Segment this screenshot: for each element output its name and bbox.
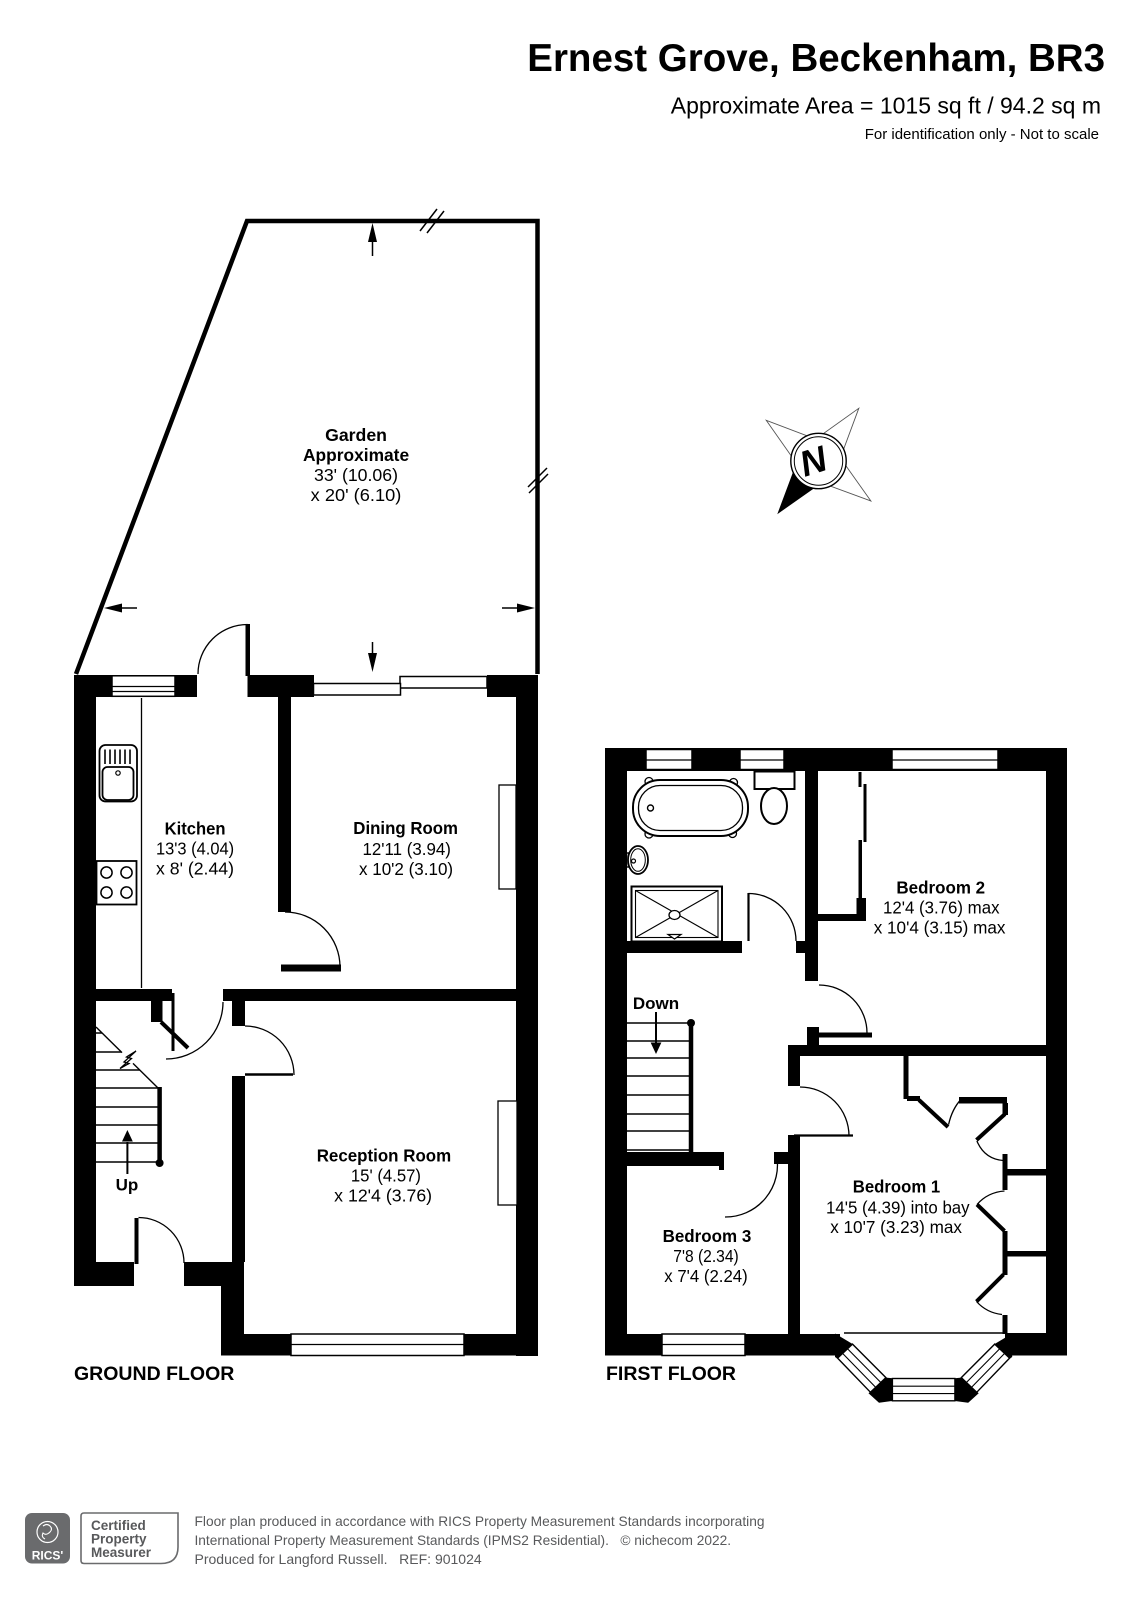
svg-text:13'3 (4.04): 13'3 (4.04): [156, 839, 234, 859]
svg-text:Garden: Garden: [325, 425, 387, 445]
svg-text:Kitchen: Kitchen: [165, 819, 226, 839]
svg-text:Bedroom 2: Bedroom 2: [896, 878, 985, 898]
svg-text:x 10'7 (3.23) max: x 10'7 (3.23) max: [830, 1217, 962, 1237]
svg-text:FIRST FLOOR: FIRST FLOOR: [606, 1363, 736, 1385]
svg-text:International Property Measure: International Property Measurement Stand…: [195, 1532, 732, 1548]
svg-text:Up: Up: [116, 1176, 139, 1195]
svg-text:x 10'4 (3.15) max: x 10'4 (3.15) max: [874, 918, 1006, 938]
svg-text:12'4 (3.76) max: 12'4 (3.76) max: [883, 898, 1000, 918]
svg-text:Floor plan produced in accorda: Floor plan produced in accordance with R…: [195, 1513, 765, 1529]
svg-text:x 7'4 (2.24): x 7'4 (2.24): [664, 1266, 747, 1286]
svg-text:x 8' (2.44): x 8' (2.44): [156, 859, 234, 879]
svg-text:x 12'4 (3.76): x 12'4 (3.76): [334, 1186, 432, 1206]
svg-text:12'11 (3.94): 12'11 (3.94): [363, 839, 451, 859]
svg-text:Bedroom 3: Bedroom 3: [663, 1226, 752, 1246]
svg-text:Approximate: Approximate: [303, 445, 409, 465]
svg-text:x 20' (6.10): x 20' (6.10): [311, 485, 402, 505]
svg-text:Bedroom 1: Bedroom 1: [853, 1177, 941, 1197]
svg-text:33' (10.06): 33' (10.06): [314, 465, 398, 485]
svg-text:7'8 (2.34): 7'8 (2.34): [673, 1246, 738, 1266]
svg-text:Ernest Grove, Beckenham, BR3: Ernest Grove, Beckenham, BR3: [527, 37, 1105, 80]
svg-text:14'5 (4.39) into bay: 14'5 (4.39) into bay: [826, 1198, 970, 1218]
svg-text:Reception Room: Reception Room: [317, 1146, 452, 1166]
svg-text:15' (4.57): 15' (4.57): [351, 1166, 421, 1186]
svg-text:Down: Down: [633, 994, 679, 1013]
svg-text:GROUND FLOOR: GROUND FLOOR: [74, 1363, 234, 1385]
svg-text:Dining Room: Dining Room: [353, 818, 458, 838]
svg-text:For identification only - Not: For identification only - Not to scale: [865, 126, 1099, 143]
svg-text:RICS': RICS': [32, 1549, 64, 1563]
svg-text:Approximate Area = 1015 sq ft: Approximate Area = 1015 sq ft / 94.2 sq …: [671, 93, 1101, 119]
svg-text:Measurer: Measurer: [91, 1545, 152, 1560]
svg-text:x 10'2 (3.10): x 10'2 (3.10): [359, 859, 453, 879]
svg-text:Produced for Langford Russell.: Produced for Langford Russell. REF: 9010…: [195, 1551, 482, 1567]
